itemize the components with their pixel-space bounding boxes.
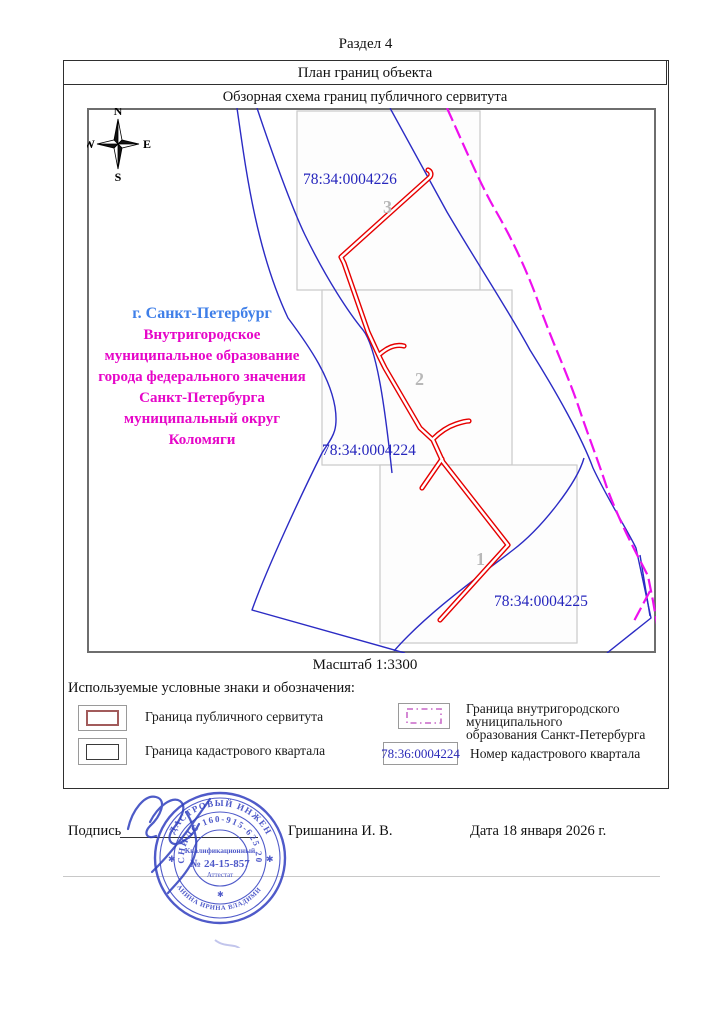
section-title: Раздел 4 — [63, 36, 668, 53]
date-label: Дата 18 января 2026 г. — [470, 823, 606, 840]
servitude-line-sample — [86, 710, 119, 726]
scheme-title: Обзорная схема границ публичного сервиту… — [63, 89, 667, 106]
legend-label-servitude: Граница публичного сервитута — [145, 709, 323, 725]
quarter-2-number: 2 — [415, 369, 424, 389]
legend-label-quarter-number: Номер кадастрового квартала — [470, 746, 640, 762]
quarter-3-number: 3 — [383, 197, 392, 217]
boundary-map: 3 2 1 78:34:0004226 78:34:0004224 78:34:… — [87, 108, 656, 653]
city-label: г. Санкт-Петербург — [132, 305, 272, 322]
compass-w-label: W — [87, 137, 95, 151]
legend-sample-servitude — [78, 705, 127, 731]
scale-label: Масштаб 1:3300 — [63, 657, 667, 674]
document-page: Раздел 4 План границ объекта Обзорная сх… — [0, 0, 724, 1024]
handwritten-signature — [115, 790, 315, 900]
municipality-line: Внутригородское — [144, 327, 261, 343]
municipality-line: муниципальный округ — [124, 411, 280, 427]
municipality-line: города федерального значения — [98, 369, 306, 385]
stamp-ink-smudge — [215, 940, 240, 948]
cadastral-number-4225: 78:34:0004225 — [494, 593, 588, 610]
municipal-line-sample — [404, 706, 444, 726]
cadastral-number-4224: 78:34:0004224 — [322, 442, 416, 459]
compass-n-label: N — [114, 108, 123, 118]
legend-sample-quarter-number: 78:36:0004224 — [383, 742, 458, 765]
legend-label-quarter: Граница кадастрового квартала — [145, 743, 325, 759]
municipality-line: Санкт-Петербурга — [139, 390, 265, 406]
signature-label: Подпись — [68, 823, 121, 840]
legend-sample-municipal — [398, 703, 450, 729]
cadastral-number-4226: 78:34:0004226 — [303, 171, 397, 188]
legend-heading: Используемые условные знаки и обозначени… — [68, 680, 355, 697]
compass-e-label: E — [143, 137, 151, 151]
legend-sample-quarter — [78, 738, 127, 765]
compass-s-label: S — [115, 170, 122, 184]
quarter-line-sample — [86, 744, 119, 760]
legend-label-municipal: Граница внутригородского муниципального … — [466, 702, 686, 741]
table-header: План границ объекта — [63, 60, 667, 85]
quarter-1-number: 1 — [476, 549, 485, 569]
municipality-line: муниципальное образование — [105, 348, 300, 364]
municipality-line: Коломяги — [169, 432, 236, 448]
